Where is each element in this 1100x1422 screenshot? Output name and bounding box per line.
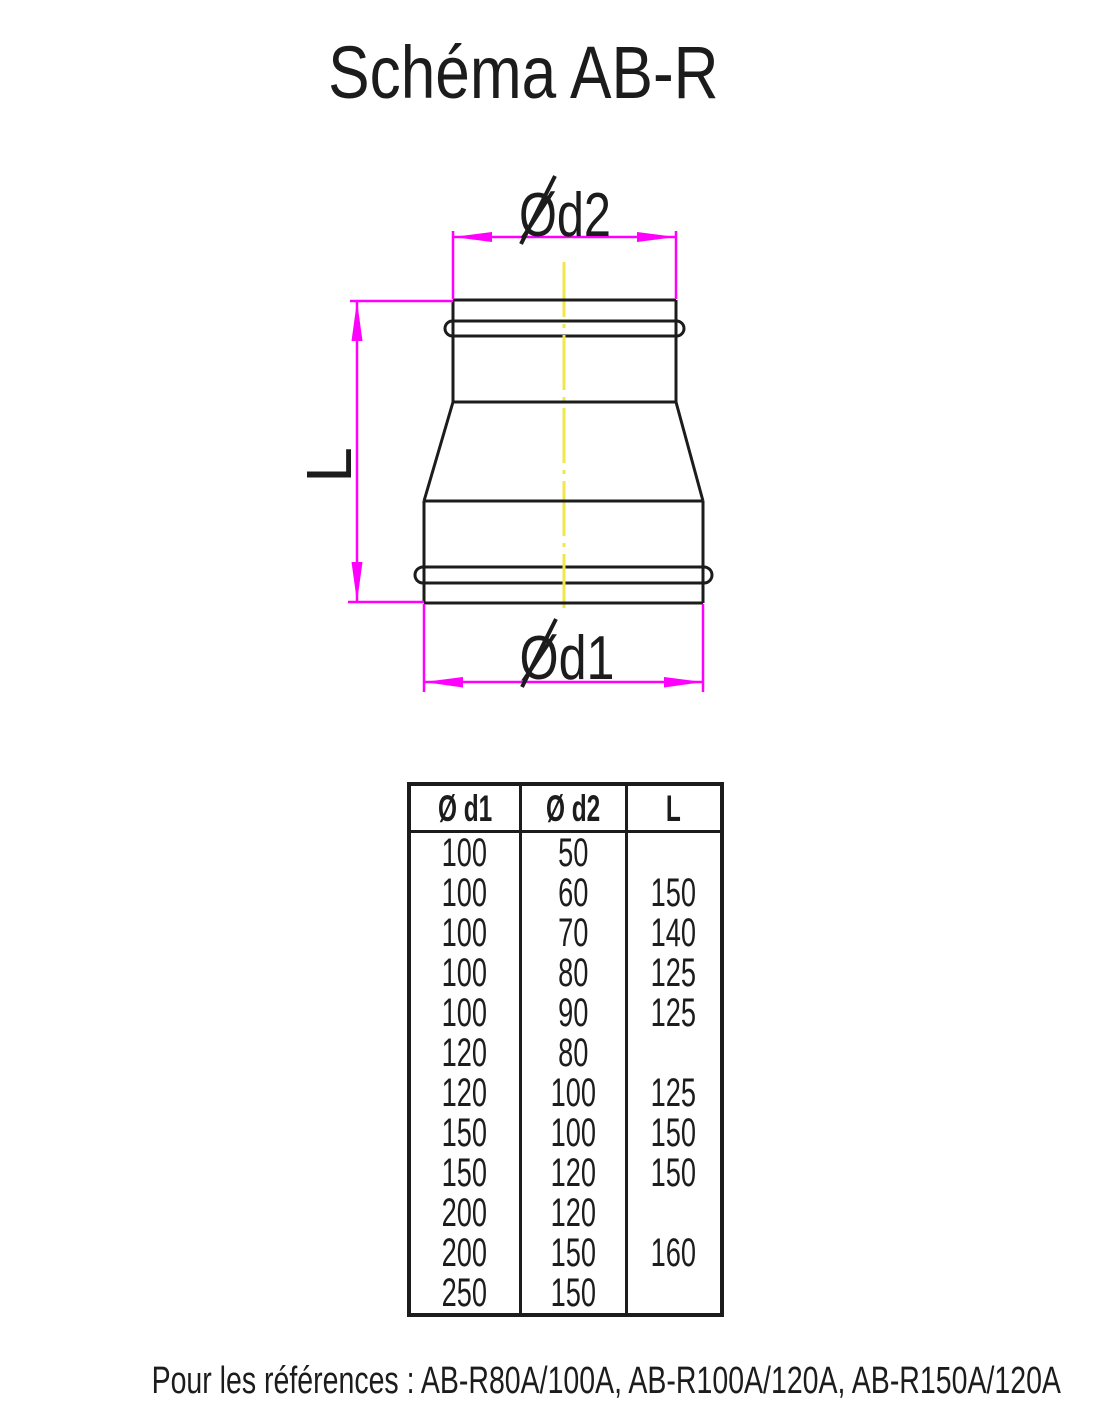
table-cell: 80 xyxy=(520,1033,626,1073)
references-footer: Pour les références : AB-R80A/100A, AB-R… xyxy=(0,1362,1100,1400)
header-d2: Ø d2 xyxy=(520,784,626,832)
d2-label: Ød2 xyxy=(519,181,611,250)
table-row: 150 120 150 xyxy=(409,1153,722,1193)
arrow-right-icon xyxy=(637,232,676,242)
table-row: 100 50 xyxy=(409,832,722,874)
arrow-right-icon xyxy=(664,677,703,688)
length-label: L xyxy=(293,447,365,483)
table-cell: 70 xyxy=(520,913,626,953)
reducer-diagram: Ød2 Ød1 L xyxy=(0,150,1100,730)
arrow-down-icon xyxy=(352,562,363,602)
table-row: 120 100 125 xyxy=(409,1073,722,1113)
table-row: 200 150 160 xyxy=(409,1233,722,1273)
table-cell: 150 xyxy=(626,873,722,913)
table-row: 100 70 140 xyxy=(409,913,722,953)
table-cell: 120 xyxy=(520,1153,626,1193)
table-cell: 150 xyxy=(520,1233,626,1273)
table-cell: 100 xyxy=(409,832,520,874)
table-cell: 125 xyxy=(626,1073,722,1113)
table-cell: 150 xyxy=(520,1273,626,1315)
table-cell xyxy=(626,832,722,874)
table-cell: 150 xyxy=(409,1113,520,1153)
table-cell: 120 xyxy=(520,1193,626,1233)
table-cell: 120 xyxy=(409,1033,520,1073)
table-cell: 50 xyxy=(520,832,626,874)
page-title: Schéma AB-R xyxy=(0,36,1047,110)
table-cell: 150 xyxy=(409,1153,520,1193)
table-cell: 80 xyxy=(520,953,626,993)
table-cell: 100 xyxy=(409,913,520,953)
table-cell xyxy=(626,1033,722,1073)
table-cell: 100 xyxy=(409,993,520,1033)
table-cell: 200 xyxy=(409,1233,520,1273)
table-cell: 100 xyxy=(409,953,520,993)
table-cell: 150 xyxy=(626,1113,722,1153)
table-cell: 200 xyxy=(409,1193,520,1233)
table-row: 200 120 xyxy=(409,1193,722,1233)
arrow-up-icon xyxy=(352,301,363,341)
header-d1: Ø d1 xyxy=(409,784,520,832)
table-cell xyxy=(626,1193,722,1233)
table-header-row: Ø d1 Ø d2 L xyxy=(409,784,722,832)
table-row: 100 80 125 xyxy=(409,953,722,993)
table-cell: 250 xyxy=(409,1273,520,1315)
table-cell: 60 xyxy=(520,873,626,913)
page-title-text: Schéma AB-R xyxy=(328,36,718,110)
table-cell: 160 xyxy=(626,1233,722,1273)
dimension-table: Ø d1 Ø d2 L 100 50 100 60 150 100 70 140… xyxy=(407,782,724,1317)
table-cell: 150 xyxy=(626,1153,722,1193)
arrow-left-icon xyxy=(424,677,463,688)
table-cell: 100 xyxy=(520,1113,626,1153)
table-cell: 100 xyxy=(409,873,520,913)
d1-label: Ød1 xyxy=(520,624,615,693)
table-cell: 125 xyxy=(626,953,722,993)
table-cell: 125 xyxy=(626,993,722,1033)
table-cell: 120 xyxy=(409,1073,520,1113)
table-row: 120 80 xyxy=(409,1033,722,1073)
table-cell: 100 xyxy=(520,1073,626,1113)
table-row: 150 100 150 xyxy=(409,1113,722,1153)
arrow-left-icon xyxy=(453,232,492,242)
header-length: L xyxy=(626,784,722,832)
table-row: 250 150 xyxy=(409,1273,722,1315)
table-cell: 90 xyxy=(520,993,626,1033)
top-bead xyxy=(445,321,684,336)
references-text: Pour les références : AB-R80A/100A, AB-R… xyxy=(152,1362,1061,1400)
table-row: 100 90 125 xyxy=(409,993,722,1033)
table-cell xyxy=(626,1273,722,1315)
table-row: 100 60 150 xyxy=(409,873,722,913)
table-cell: 140 xyxy=(626,913,722,953)
